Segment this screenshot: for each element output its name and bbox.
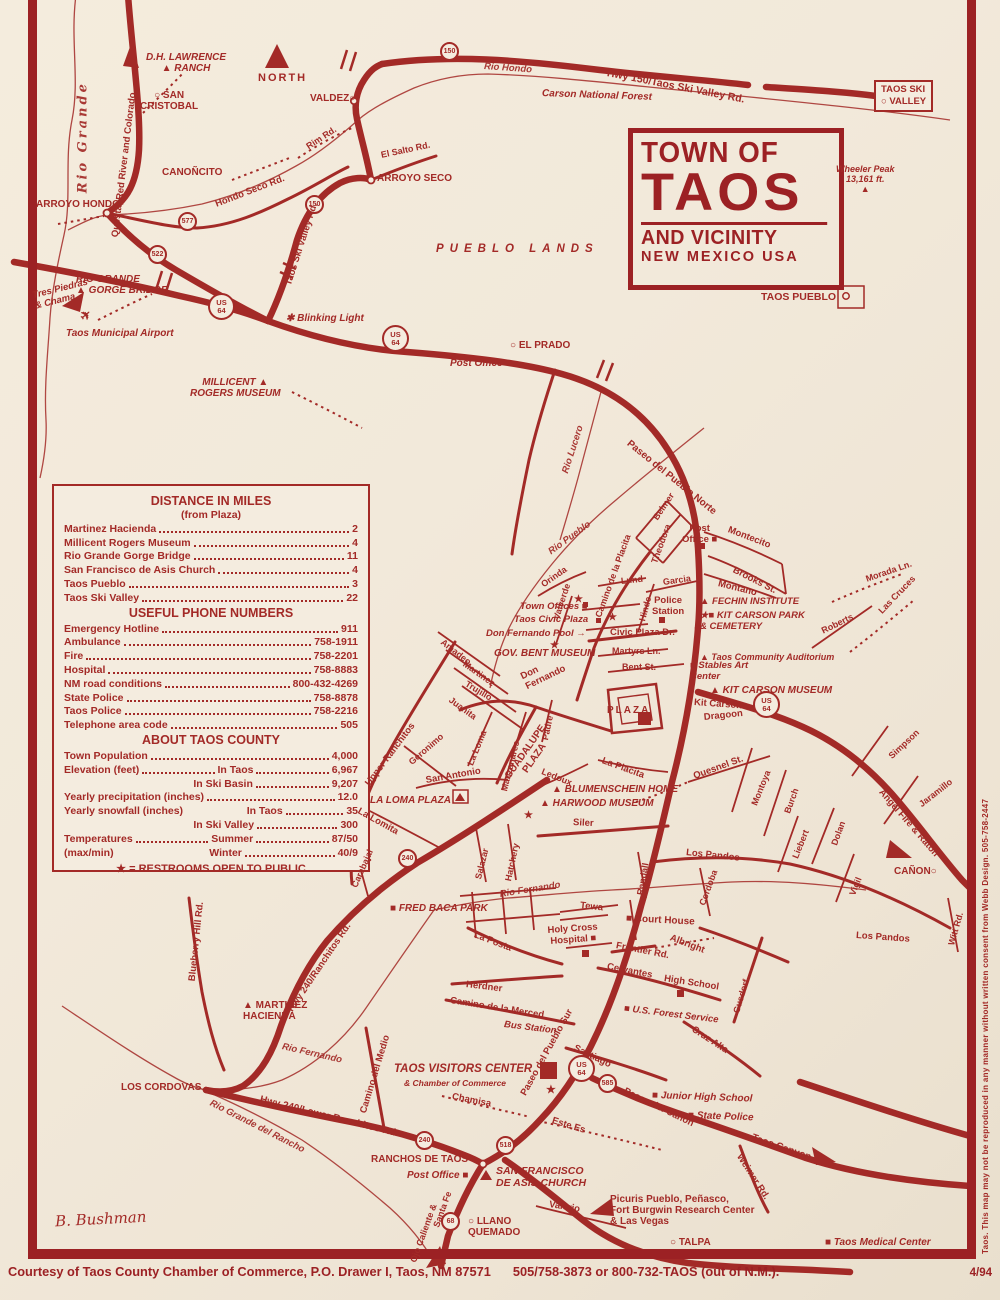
route-shield-us64: US 64 bbox=[208, 293, 235, 320]
row-value: 3 bbox=[352, 578, 358, 590]
footer-courtesy: Courtesy of Taos County Chamber of Comme… bbox=[8, 1264, 491, 1279]
poi-label-airport: Taos Municipal Airport bbox=[66, 328, 174, 339]
footer: Courtesy of Taos County Chamber of Comme… bbox=[8, 1264, 992, 1279]
info-row: Millicent Rogers Museum4 bbox=[64, 535, 358, 549]
info-heading-distance: DISTANCE IN MILES bbox=[64, 494, 358, 509]
row-label: Temperatures bbox=[64, 833, 133, 845]
row-label: Millicent Rogers Museum bbox=[64, 537, 191, 549]
dot-leader bbox=[165, 686, 290, 688]
map-border-left bbox=[28, 0, 37, 1259]
info-subheading: (from Plaza) bbox=[64, 509, 358, 521]
info-row: Rio Grande Gorge Bridge11 bbox=[64, 549, 358, 563]
dot-leader bbox=[194, 558, 344, 560]
poi-label-blumenschein: ▲ BLUMENSCHEIN HOME bbox=[552, 784, 678, 795]
info-row: Ambulance758-1911 bbox=[64, 635, 358, 649]
info-row: Taos Pueblo3 bbox=[64, 576, 358, 590]
info-row: Taos Police758-2216 bbox=[64, 704, 358, 718]
row-label: Rio Grande Gorge Bridge bbox=[64, 550, 191, 562]
dot-leader bbox=[194, 545, 350, 547]
dot-leader bbox=[108, 672, 310, 674]
row-value: 9,207 bbox=[332, 778, 358, 790]
street-label-bent: Bent St. bbox=[622, 662, 656, 672]
row-label: Elevation (feet) bbox=[64, 764, 139, 776]
north-arrow-icon bbox=[265, 44, 289, 68]
row-label: (max/min) bbox=[64, 847, 114, 859]
info-row: Elevation (feet)In Taos6,967 bbox=[64, 762, 358, 776]
poi-label-ranchos-post-office: Post Office ■ bbox=[407, 1170, 468, 1181]
poi-label-la-loma-plaza: LA LOMA PLAZA bbox=[370, 795, 451, 806]
dot-leader bbox=[286, 813, 344, 815]
poi-label-chamber: & Chamber of Commerce bbox=[404, 1079, 506, 1089]
route-shield-577: 577 bbox=[178, 212, 197, 231]
row-label: Ambulance bbox=[64, 636, 121, 648]
info-row: Yearly precipitation (inches)12.0 bbox=[64, 790, 358, 804]
title-line-3: AND VICINITY bbox=[641, 222, 827, 249]
dot-leader bbox=[257, 827, 337, 829]
info-row: Town Population4,000 bbox=[64, 748, 358, 762]
info-row: Fire758-2201 bbox=[64, 648, 358, 662]
north-label: NORTH bbox=[258, 72, 307, 84]
info-row: Emergency Hotline911 bbox=[64, 621, 358, 635]
map-shape bbox=[512, 370, 555, 554]
route-shield-240: 240 bbox=[398, 849, 417, 868]
row-label: State Police bbox=[64, 692, 124, 704]
info-row: San Francisco de Asis Church4 bbox=[64, 562, 358, 576]
row-label: San Francisco de Asis Church bbox=[64, 564, 215, 576]
poi-label-holy-cross: Holy Cross Hospital ■ bbox=[547, 923, 599, 948]
junction-arroyo-hondo bbox=[104, 210, 111, 217]
info-row: Martinez Hacienda2 bbox=[64, 521, 358, 535]
info-box: DISTANCE IN MILES (from Plaza) Martinez … bbox=[52, 484, 370, 872]
street-label-martyrs: Martyrs Ln. bbox=[612, 646, 661, 656]
town-label-arroyo-hondo: ARROYO HONDO bbox=[36, 199, 120, 210]
map-shape bbox=[292, 392, 362, 428]
row-value: 11 bbox=[347, 550, 358, 562]
row-mid: In Ski Basin bbox=[193, 778, 253, 790]
info-row: Telephone area code505 bbox=[64, 717, 358, 731]
route-shield-us64: US 64 bbox=[382, 325, 409, 352]
high-school-square bbox=[677, 990, 684, 997]
poi-label-blinking-light: ✱ Blinking Light bbox=[286, 313, 364, 324]
town-label-san-cristobal: ○ SAN CRISTOBAL bbox=[140, 90, 198, 112]
dot-leader bbox=[245, 855, 335, 857]
restroom-star-icon: ★ bbox=[608, 612, 617, 623]
poi-label-harwood: ▲ HARWOOD MUSEUM bbox=[540, 798, 654, 809]
info-row: In Ski Basin9,207 bbox=[64, 776, 358, 790]
row-label: Yearly snowfall (inches) bbox=[64, 805, 183, 817]
poi-label-sf-asis-church: SAN FRANCISCO DE ASIS CHURCH bbox=[496, 1166, 586, 1190]
row-label: Hospital bbox=[64, 664, 105, 676]
area-label-pueblo-lands: PUEBLO LANDS bbox=[436, 243, 599, 256]
angel-fire-arrowhead bbox=[886, 840, 912, 858]
dot-leader bbox=[129, 586, 350, 588]
junction-ranchos bbox=[480, 1161, 487, 1168]
dot-leader bbox=[142, 772, 214, 774]
road-valdez bbox=[356, 64, 382, 180]
info-row: TemperaturesSummer87/50 bbox=[64, 831, 358, 845]
map-shape bbox=[98, 294, 152, 320]
poi-label-civic-plaza: Taos Civic Plaza bbox=[514, 615, 588, 626]
map-shape bbox=[812, 606, 918, 824]
row-label: Yearly precipitation (inches) bbox=[64, 791, 204, 803]
row-label: Taos Ski Valley bbox=[64, 592, 139, 604]
poi-label-taos-medical: ■ Taos Medical Center bbox=[825, 1237, 931, 1248]
row-label: Telephone area code bbox=[64, 719, 168, 731]
dot-leader bbox=[136, 841, 209, 843]
dot-leader bbox=[142, 600, 343, 602]
dot-leader bbox=[256, 841, 329, 843]
row-value: 4 bbox=[352, 564, 358, 576]
row-value: 911 bbox=[341, 623, 358, 635]
title-line-4: NEW MEXICO USA bbox=[641, 249, 831, 266]
poi-label-post-office-elprado: Post Office ■ bbox=[450, 358, 511, 369]
row-value: 6,967 bbox=[332, 764, 358, 776]
info-row: Yearly snowfall (inches)In Taos35 bbox=[64, 803, 358, 817]
road-label-picuris: Picuris Pueblo, Peñasco, Fort Burgwin Re… bbox=[610, 1194, 754, 1228]
poi-label-dh-lawrence-ranch: D.H. LAWRENCE ▲ RANCH bbox=[146, 52, 226, 74]
row-label: Taos Pueblo bbox=[64, 578, 126, 590]
poi-label-wheeler-peak: Wheeler Peak 13,161 ft. ▲ bbox=[836, 164, 895, 194]
dot-leader bbox=[86, 658, 310, 660]
map-shape bbox=[700, 928, 788, 962]
info-row: In Ski Valley300 bbox=[64, 817, 358, 831]
route-shield-150: 150 bbox=[440, 42, 459, 61]
row-mid: Winter bbox=[209, 847, 242, 859]
footer-date: 4/94 bbox=[970, 1267, 992, 1279]
row-value: 12.0 bbox=[338, 791, 358, 803]
dot-leader bbox=[256, 786, 329, 788]
row-value: 40/9 bbox=[338, 847, 358, 859]
row-mid: In Ski Valley bbox=[193, 819, 254, 831]
row-value: 4,000 bbox=[332, 750, 358, 762]
town-label-llano-quemado: ○ LLANO QUEMADO bbox=[468, 1216, 520, 1238]
taos-map: TOWN OF TAOS AND VICINITY NEW MEXICO USA… bbox=[0, 0, 1000, 1300]
poi-label-police-station: Police Station bbox=[652, 596, 684, 617]
info-row: Taos Ski Valley22 bbox=[64, 590, 358, 604]
poi-label-plaza: PLAZA bbox=[607, 705, 650, 716]
dot-leader bbox=[207, 799, 335, 801]
river-label-rio-grande: Rio Grande bbox=[77, 81, 92, 193]
map-border-right bbox=[967, 0, 976, 1259]
taos-canyon-arrowhead bbox=[812, 1147, 836, 1165]
street-label-civic-plaza-dr: Civic Plaza Dr. bbox=[610, 628, 675, 639]
taos-pueblo-circle bbox=[843, 293, 849, 299]
row-value: 2 bbox=[352, 523, 358, 535]
poi-label-don-fernando-pool: Don Fernando Pool → bbox=[486, 629, 586, 640]
row-value: 505 bbox=[340, 719, 358, 731]
row-value: 758-8883 bbox=[314, 664, 358, 676]
town-label-taos-ski-valley: TAOS SKI ○ VALLEY bbox=[874, 80, 933, 112]
civic-square-2 bbox=[596, 618, 601, 623]
row-mid: In Taos bbox=[218, 764, 254, 776]
restrooms-legend: ★ = RESTROOMS OPEN TO PUBLIC bbox=[64, 862, 358, 875]
map-shape bbox=[597, 360, 613, 381]
row-value: 800-432-4269 bbox=[293, 678, 358, 690]
side-credit: Taos. This map may not be reproduced in … bbox=[982, 394, 990, 1254]
dot-leader bbox=[171, 727, 338, 729]
title-line-2: TAOS bbox=[641, 168, 835, 218]
title-box: TOWN OF TAOS AND VICINITY NEW MEXICO USA bbox=[628, 128, 844, 290]
river-tributary bbox=[62, 1006, 206, 1090]
route-shield-585: 585 bbox=[598, 1074, 617, 1093]
hospital-square bbox=[582, 950, 589, 957]
row-label: Fire bbox=[64, 650, 83, 662]
row-value: 87/50 bbox=[332, 833, 358, 845]
police-square bbox=[659, 617, 665, 623]
route-shield-518: 518 bbox=[496, 1136, 515, 1155]
poi-label-post-office-central: Post Office ■ bbox=[682, 524, 717, 545]
info-row: Hospital758-8883 bbox=[64, 662, 358, 676]
town-label-talpa: ○ TALPA bbox=[670, 1237, 711, 1248]
town-label-los-cordovas: LOS CORDOVAS bbox=[121, 1082, 201, 1093]
row-label: Town Population bbox=[64, 750, 148, 762]
town-label-el-prado: ○ EL PRADO bbox=[510, 340, 570, 351]
town-label-valdez: VALDEZ○ bbox=[310, 93, 355, 104]
row-value: 758-2216 bbox=[314, 705, 358, 717]
restroom-star-icon: ★ bbox=[574, 594, 583, 605]
dot-leader bbox=[256, 772, 328, 774]
row-value: 4 bbox=[352, 537, 358, 549]
poi-label-fechin: ▲ FECHIN INSTITUTE bbox=[700, 597, 799, 608]
junction-arroyo-seco bbox=[368, 177, 375, 184]
info-heading-county: ABOUT TAOS COUNTY bbox=[64, 733, 358, 748]
row-mid: Summer bbox=[211, 833, 253, 845]
restroom-star-icon: ★ bbox=[524, 810, 533, 821]
town-label-canoncito: CANOÑCITO bbox=[162, 167, 222, 178]
poi-label-fred-baca: ■ FRED BACA PARK bbox=[390, 903, 488, 914]
road-paseo-del-canon bbox=[592, 1078, 970, 1186]
row-label: Martinez Hacienda bbox=[64, 523, 156, 535]
info-row: State Police758-8878 bbox=[64, 690, 358, 704]
row-label: Emergency Hotline bbox=[64, 623, 159, 635]
row-mid: In Taos bbox=[247, 805, 283, 817]
dot-leader bbox=[218, 572, 349, 574]
map-border-bottom bbox=[28, 1249, 976, 1259]
town-label-taos-pueblo: TAOS PUEBLO bbox=[761, 292, 836, 304]
row-label: Taos Police bbox=[64, 705, 122, 717]
info-heading-phones: USEFUL PHONE NUMBERS bbox=[64, 606, 358, 621]
row-value: 758-8878 bbox=[314, 692, 358, 704]
row-value: 22 bbox=[346, 592, 358, 604]
poi-label-visitors-center: TAOS VISITORS CENTER bbox=[394, 1063, 532, 1076]
route-shield-522: 522 bbox=[148, 245, 167, 264]
river-rio-grande bbox=[40, 0, 76, 478]
dot-leader bbox=[124, 644, 312, 646]
route-shield-240: 240 bbox=[415, 1131, 434, 1150]
town-label-ranchos: RANCHOS DE TAOS bbox=[371, 1154, 468, 1165]
poi-label-martinez-hacienda: ▲ MARTINEZ HACIENDA bbox=[243, 1000, 307, 1022]
poi-label-gov-bent: GOV. BENT MUSEUM bbox=[494, 648, 595, 659]
row-value: 758-2201 bbox=[314, 650, 358, 662]
street-label-tewa: Tewa bbox=[579, 901, 603, 914]
row-value: 758-1911 bbox=[314, 636, 358, 648]
footer-phones: 505/758-3873 or 800-732-TAOS (out of N.M… bbox=[513, 1264, 779, 1279]
dot-leader bbox=[125, 713, 311, 715]
poi-label-state-police: ■ State Police bbox=[688, 1110, 754, 1123]
row-label: NM road conditions bbox=[64, 678, 162, 690]
map-shape bbox=[538, 826, 668, 836]
dot-leader bbox=[159, 531, 349, 533]
restroom-star-icon: ★ bbox=[550, 640, 559, 651]
poi-label-kit-carson-museum: ▲ KIT CARSON MUSEUM bbox=[710, 685, 832, 696]
dot-leader bbox=[162, 631, 338, 633]
info-row: (max/min)Winter40/9 bbox=[64, 845, 358, 859]
town-label-canon: CAÑON○ bbox=[894, 866, 937, 877]
info-row: NM road conditions800-432-4269 bbox=[64, 676, 358, 690]
map-shape bbox=[341, 50, 356, 71]
road-taos-canyon bbox=[800, 1082, 970, 1136]
dot-leader bbox=[151, 758, 329, 760]
street-label-siler: Siler bbox=[573, 818, 594, 830]
town-label-arroyo-seco: ARROYO SECO bbox=[377, 173, 452, 184]
row-value: 300 bbox=[340, 819, 358, 831]
restroom-star-icon: ★ bbox=[546, 1084, 556, 1096]
poi-label-stables-art: ■ Stables Art Center bbox=[690, 661, 748, 682]
poi-label-millicent-rogers: MILLICENT ▲ ROGERS MUSEUM bbox=[190, 377, 281, 399]
poi-label-kit-carson-park: ★■ KIT CARSON PARK & CEMETERY bbox=[700, 611, 805, 632]
dot-leader bbox=[127, 700, 311, 702]
